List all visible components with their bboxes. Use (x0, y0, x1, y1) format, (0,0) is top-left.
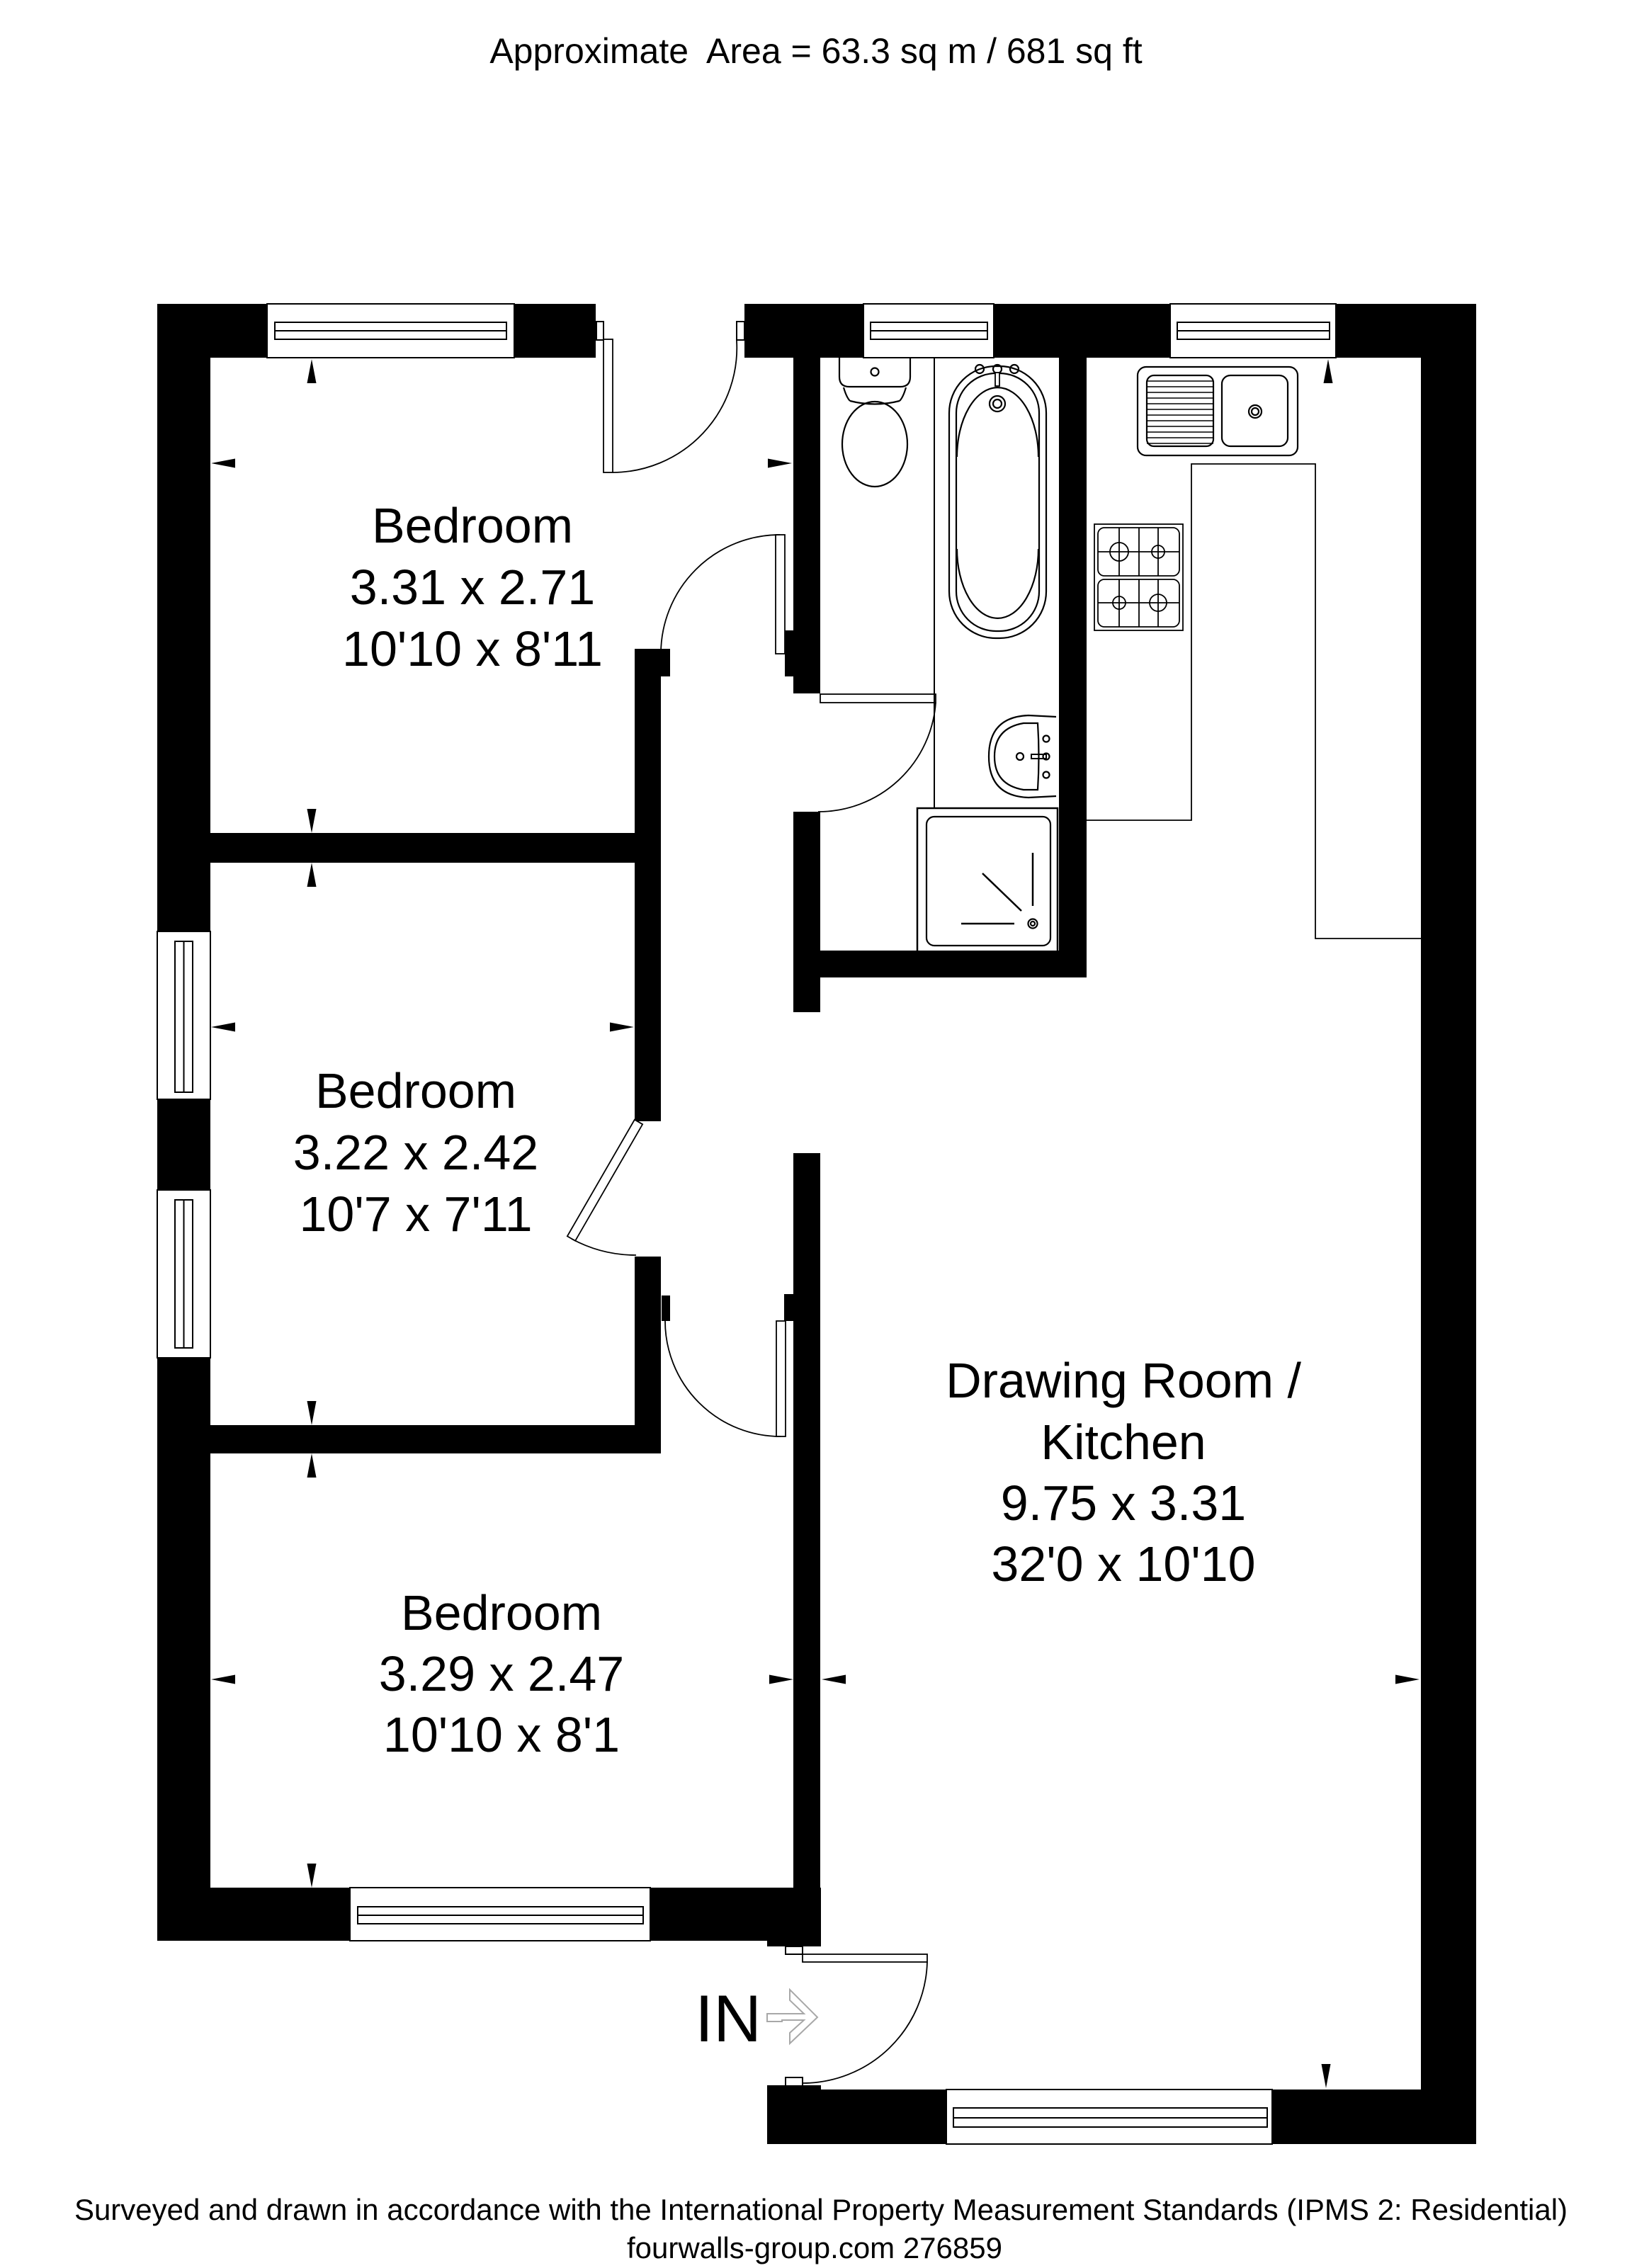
svg-text:10'10 x 8'1: 10'10 x 8'1 (383, 1707, 620, 1762)
svg-text:10'7 x 7'11: 10'7 x 7'11 (299, 1186, 532, 1242)
svg-text:Surveyed and drawn in accordan: Surveyed and drawn in accordance with th… (74, 2193, 1568, 2226)
svg-text:10'10 x 8'11: 10'10 x 8'11 (342, 621, 603, 676)
svg-text:3.22 x 2.42: 3.22 x 2.42 (293, 1125, 538, 1180)
svg-text:Drawing Room /: Drawing Room / (946, 1353, 1301, 1408)
svg-text:Bedroom: Bedroom (401, 1585, 602, 1640)
svg-text:3.31 x 2.71: 3.31 x 2.71 (350, 560, 595, 615)
svg-text:Bedroom: Bedroom (372, 498, 573, 553)
svg-text:32'0 x 10'10: 32'0 x 10'10 (991, 1536, 1255, 1592)
svg-text:9.75 x 3.31: 9.75 x 3.31 (1001, 1475, 1246, 1531)
svg-text:IN: IN (695, 1981, 761, 2056)
svg-text:3.29 x 2.47: 3.29 x 2.47 (379, 1646, 624, 1701)
svg-text:Bedroom: Bedroom (315, 1063, 516, 1118)
svg-text:Kitchen: Kitchen (1041, 1414, 1206, 1470)
svg-text:Approximate Area = 63.3 sq m: Approximate Area = 63.3 sq m / 681 sq ft (489, 31, 1142, 71)
svg-text:fourwalls-group.com 276859: fourwalls-group.com 276859 (627, 2231, 1002, 2264)
